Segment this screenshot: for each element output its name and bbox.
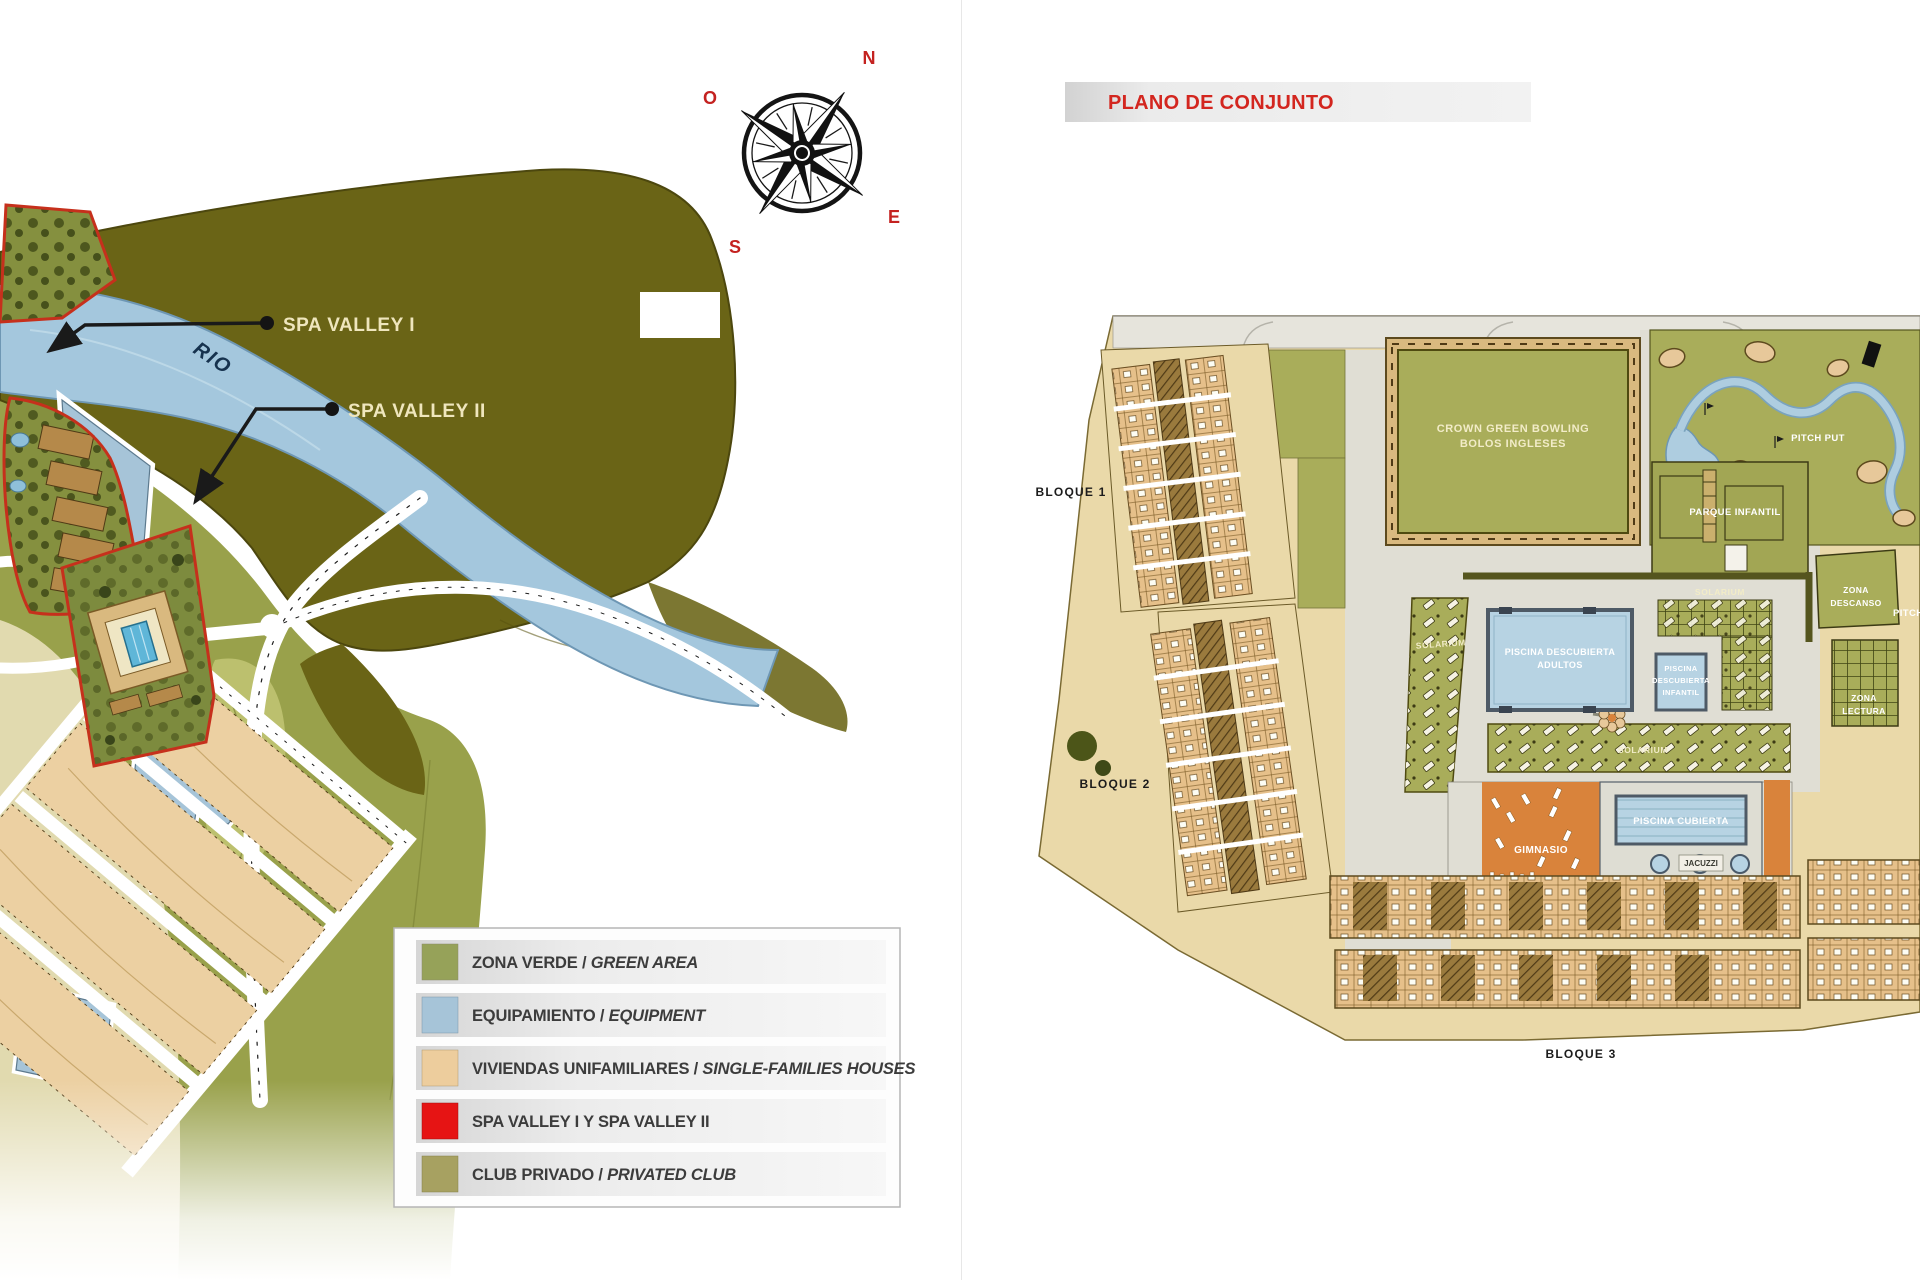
legend-label: SPA VALLEY I Y SPA VALLEY II bbox=[472, 1113, 709, 1131]
location-map: N O E S SPA VALLEY I SPA VALLEY II RIO Z… bbox=[0, 0, 963, 1280]
compass-rose: N O E S bbox=[699, 48, 905, 257]
piscina-cubierta-label: PISCINA CUBIERTA bbox=[1633, 816, 1729, 827]
pitch-put-label: PITCH PUT bbox=[1791, 433, 1845, 444]
legend-row-green: ZONA VERDE / GREEN AREA bbox=[416, 940, 886, 984]
solarium-label-bottom: SOLARIUM bbox=[1618, 745, 1668, 755]
piscina-adultos-label-2: ADULTOS bbox=[1537, 660, 1582, 670]
compass-o: O bbox=[703, 88, 717, 108]
jacuzzi-circles: JACUZZI bbox=[1651, 855, 1749, 873]
zona-lectura-label-2: LECTURA bbox=[1842, 706, 1885, 716]
page-title: PLANO DE CONJUNTO bbox=[1108, 92, 1334, 114]
bowling-green: CROWN GREEN BOWLING BOLOS INGLESES bbox=[1386, 338, 1640, 545]
legend-row-equipment: EQUIPAMIENTO / EQUIPMENT bbox=[416, 993, 886, 1037]
bowling-label-1: CROWN GREEN BOWLING bbox=[1437, 423, 1590, 435]
pitch-label: PITCH bbox=[1893, 608, 1920, 619]
bloque-2-label: BLOQUE 2 bbox=[1080, 777, 1151, 791]
legend-swatch-tan bbox=[422, 1050, 458, 1086]
legend-swatch-green bbox=[422, 944, 458, 980]
legend-swatch-olive bbox=[422, 1156, 458, 1192]
svg-text:ZONA VERDE / GREEN AREA: ZONA VERDE / GREEN AREA bbox=[472, 954, 698, 972]
spa-building: GIMNASIO PISCINA CUBIERTA JACUZZI bbox=[1448, 780, 1792, 890]
blank-patch bbox=[640, 292, 720, 338]
bloque-1-label: BLOQUE 1 bbox=[1036, 485, 1107, 499]
bloque-1-buildings bbox=[1101, 344, 1295, 612]
legend-swatch-red bbox=[422, 1103, 458, 1139]
compass-s: S bbox=[729, 237, 741, 257]
solarium-label-top: SOLARIUM bbox=[1695, 587, 1745, 597]
parque-infantil-label: PARQUE INFANTIL bbox=[1689, 507, 1780, 518]
jacuzzi-label: JACUZZI bbox=[1684, 859, 1718, 868]
legend-label: ZONA VERDE bbox=[472, 954, 578, 972]
piscina-infantil-label-2: DESCUBIERTA bbox=[1652, 676, 1710, 685]
legend-row-spa: SPA VALLEY I Y SPA VALLEY II bbox=[416, 1099, 886, 1143]
callout-spa-valley-1: SPA VALLEY I bbox=[283, 315, 415, 336]
legend-label: VIVIENDAS UNIFAMILIARES bbox=[472, 1060, 689, 1078]
deck-strip bbox=[1764, 780, 1790, 888]
site-plan: PLANO DE CONJUNTO bbox=[963, 0, 1920, 1280]
piscina-infantil: PISCINA DESCUBIERTA INFANTIL bbox=[1652, 654, 1710, 710]
callout-spa-valley-2: SPA VALLEY II bbox=[348, 401, 486, 422]
piscina-infantil-label-1: PISCINA bbox=[1664, 664, 1697, 673]
legend-label: CLUB PRIVADO bbox=[472, 1166, 594, 1184]
map-legend: ZONA VERDE / GREEN AREA EQUIPAMIENTO / E… bbox=[394, 928, 915, 1207]
legend-swatch-blue bbox=[422, 997, 458, 1033]
gimnasio-zone: GIMNASIO bbox=[1482, 782, 1600, 886]
svg-text:SPA VALLEY I Y SPA VALLEY II: SPA VALLEY I Y SPA VALLEY II bbox=[472, 1113, 709, 1131]
green-strip-b bbox=[1298, 458, 1345, 608]
bloque-3-label: BLOQUE 3 bbox=[1546, 1047, 1617, 1061]
svg-text:EQUIPAMIENTO / EQUIPMENT: EQUIPAMIENTO / EQUIPMENT bbox=[472, 1007, 707, 1025]
gimnasio-label: GIMNASIO bbox=[1514, 845, 1568, 856]
piscina-infantil-label-3: INFANTIL bbox=[1663, 688, 1700, 697]
piscina-adultos: PISCINA DESCUBIERTA ADULTOS bbox=[1488, 607, 1632, 713]
bowling-label-2: BOLOS INGLESES bbox=[1460, 438, 1566, 450]
section-header: PLANO DE CONJUNTO bbox=[1065, 82, 1531, 122]
compass-e: E bbox=[888, 207, 900, 227]
svg-text:VIVIENDAS UNIFAMILIARES / SING: VIVIENDAS UNIFAMILIARES / SINGLE-FAMILIE… bbox=[472, 1060, 915, 1078]
legend-row-houses: VIVIENDAS UNIFAMILIARES / SINGLE-FAMILIE… bbox=[416, 1046, 915, 1090]
zona-descanso-label-2: DESCANSO bbox=[1830, 598, 1881, 608]
parque-infantil-zone bbox=[1652, 462, 1808, 578]
piscina-adultos-label-1: PISCINA DESCUBIERTA bbox=[1505, 647, 1616, 657]
panel-divider bbox=[961, 0, 962, 1280]
svg-text:CLUB PRIVADO / PRIVATED CLUB: CLUB PRIVADO / PRIVATED CLUB bbox=[472, 1166, 736, 1184]
legend-label: EQUIPAMIENTO bbox=[472, 1007, 596, 1025]
indoor-pool-hall: PISCINA CUBIERTA JACUZZI bbox=[1600, 782, 1762, 886]
brochure-page: N O E S SPA VALLEY I SPA VALLEY II RIO Z… bbox=[0, 0, 1920, 1280]
compass-n: N bbox=[863, 48, 876, 68]
zona-lectura-label-1: ZONA bbox=[1851, 693, 1877, 703]
legend-row-club: CLUB PRIVADO / PRIVATED CLUB bbox=[416, 1152, 886, 1196]
zona-descanso-label-1: ZONA bbox=[1843, 585, 1869, 595]
